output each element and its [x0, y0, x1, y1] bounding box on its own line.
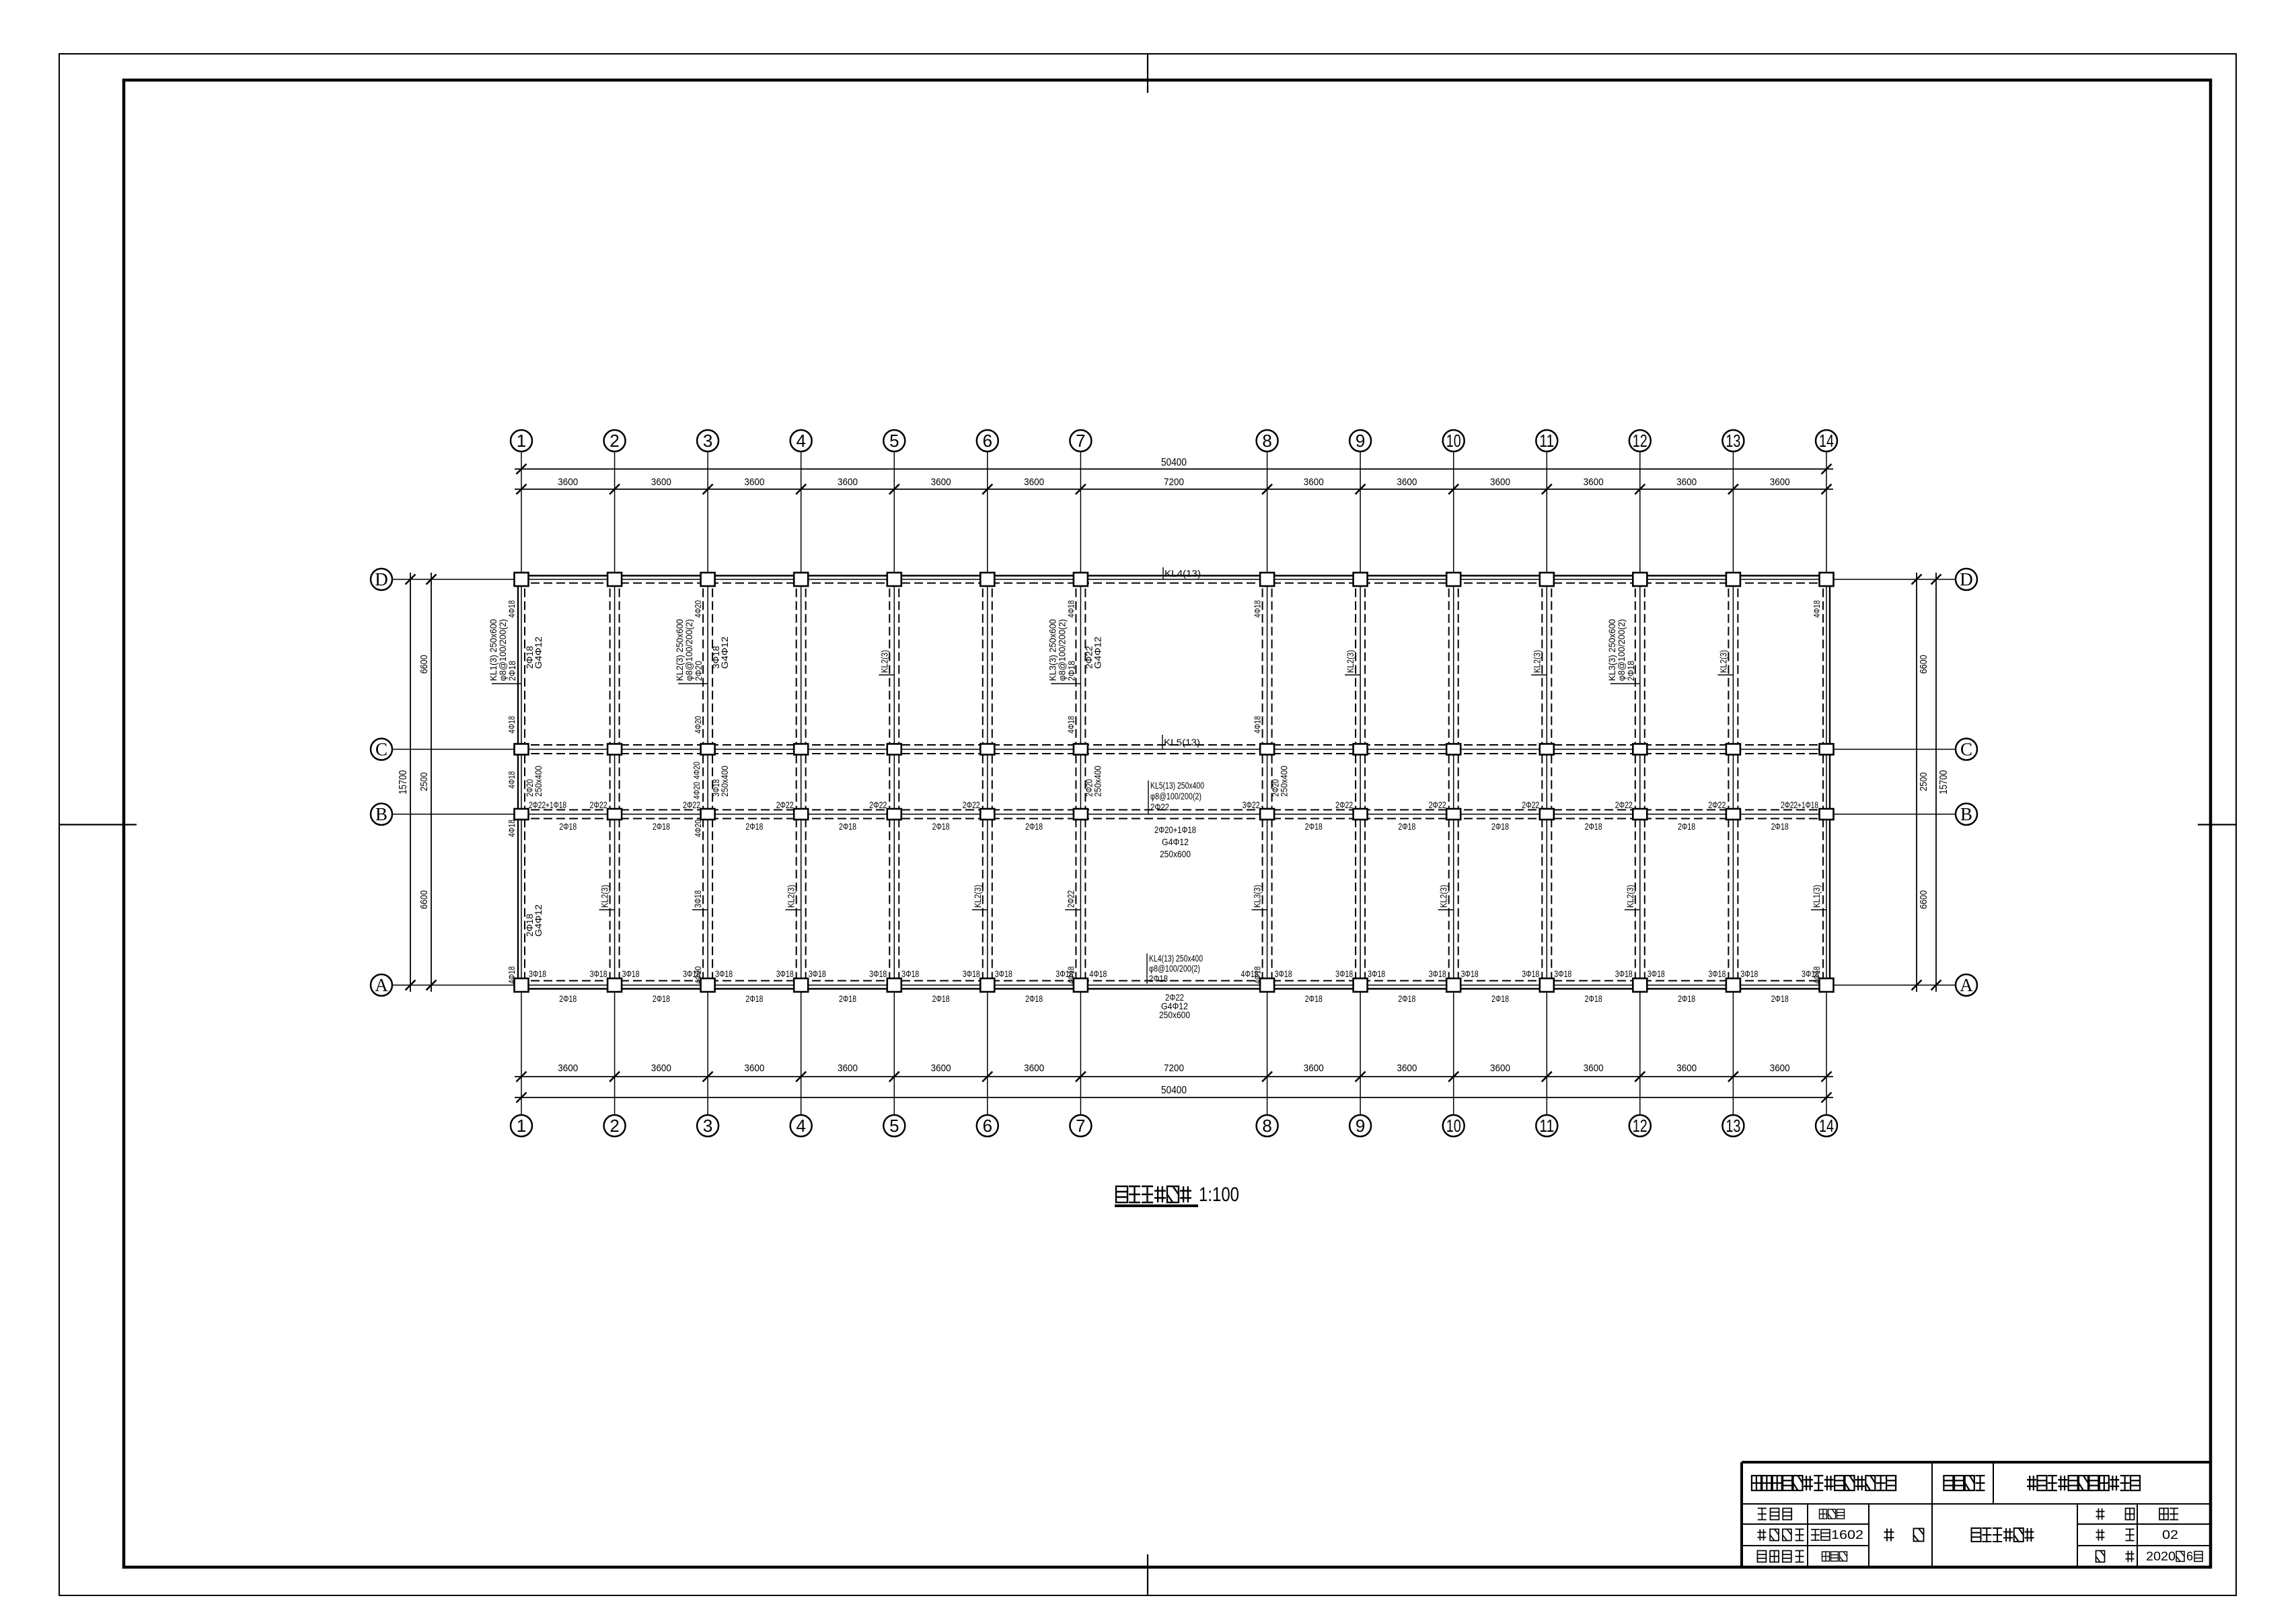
svg-text:2Φ20: 2Φ20: [694, 661, 704, 681]
svg-text:A: A: [1960, 975, 1973, 995]
svg-text:4Φ20: 4Φ20: [693, 716, 703, 733]
svg-text:3Φ18: 3Φ18: [1056, 969, 1073, 979]
svg-text:2Φ18: 2Φ18: [932, 822, 950, 832]
svg-text:2Φ22+1Φ18: 2Φ22+1Φ18: [529, 800, 566, 810]
svg-text:9: 9: [1356, 1116, 1365, 1136]
svg-text:KL5(13) 250x400: KL5(13) 250x400: [1150, 781, 1204, 791]
svg-text:3Φ18: 3Φ18: [1708, 969, 1726, 979]
svg-text:2Φ18: 2Φ18: [1626, 661, 1636, 681]
svg-text:KL2(3): KL2(3): [786, 885, 797, 908]
svg-text:2Φ18: 2Φ18: [745, 822, 763, 832]
svg-text:2500: 2500: [418, 772, 430, 791]
svg-text:2Φ22+1Φ18: 2Φ22+1Φ18: [1781, 800, 1818, 810]
svg-text:5: 5: [889, 431, 899, 451]
svg-text:2Φ22: 2Φ22: [1150, 802, 1169, 812]
svg-text:2500: 2500: [1918, 772, 1929, 791]
svg-text:15700: 15700: [1938, 770, 1950, 794]
svg-text:3600: 3600: [651, 1062, 671, 1074]
svg-text:3Φ18: 3Φ18: [715, 969, 733, 979]
svg-text:2Φ22: 2Φ22: [776, 800, 794, 810]
svg-text:KL2(3) 250x600: KL2(3) 250x600: [675, 619, 685, 681]
svg-text:4Φ20: 4Φ20: [693, 820, 703, 837]
svg-text:4Φ18: 4Φ18: [1812, 600, 1822, 618]
svg-text:3Φ18: 3Φ18: [1461, 969, 1479, 979]
svg-text:3600: 3600: [558, 1062, 578, 1074]
svg-text:4Φ18: 4Φ18: [507, 966, 517, 984]
svg-text:2Φ18: 2Φ18: [507, 661, 517, 681]
svg-text:2Φ18: 2Φ18: [1678, 822, 1695, 832]
svg-text:250x600: 250x600: [1159, 1010, 1190, 1020]
svg-text:250x600: 250x600: [1160, 849, 1191, 859]
svg-text:2Φ18: 2Φ18: [559, 822, 577, 832]
svg-text:6600: 6600: [1918, 655, 1929, 674]
svg-text:3Φ18: 3Φ18: [1368, 969, 1385, 979]
svg-text:4: 4: [796, 1116, 805, 1136]
svg-text:2Φ18: 2Φ18: [745, 994, 763, 1004]
svg-text:3Φ18: 3Φ18: [776, 969, 794, 979]
svg-text:G4Φ12: G4Φ12: [533, 637, 544, 669]
svg-text:D: D: [1960, 569, 1973, 589]
svg-text:3600: 3600: [1397, 1062, 1417, 1074]
svg-text:7: 7: [1076, 431, 1085, 451]
svg-text:2020: 2020: [2146, 1550, 2176, 1563]
svg-text:13: 13: [1726, 1116, 1740, 1136]
svg-text:2Φ22: 2Φ22: [590, 800, 607, 810]
svg-text:2Φ18: 2Φ18: [1585, 994, 1602, 1004]
svg-text:2Φ18: 2Φ18: [653, 994, 670, 1004]
svg-text:02: 02: [2162, 1528, 2178, 1542]
svg-text:3Φ18: 3Φ18: [1802, 969, 1819, 979]
svg-text:2Φ20+1Φ18: 2Φ20+1Φ18: [1154, 825, 1196, 835]
svg-text:3600: 3600: [1304, 476, 1324, 488]
svg-text:2Φ18: 2Φ18: [559, 994, 577, 1004]
svg-text:3600: 3600: [1676, 476, 1697, 488]
svg-text:2Φ18: 2Φ18: [1678, 994, 1695, 1004]
svg-text:3Φ18: 3Φ18: [963, 969, 980, 979]
svg-text:KL3(3) 250x600: KL3(3) 250x600: [1607, 619, 1617, 681]
svg-text:3600: 3600: [1584, 1062, 1604, 1074]
svg-text:KL4(13): KL4(13): [1164, 568, 1201, 579]
svg-text:2: 2: [609, 431, 619, 451]
svg-text:1:100: 1:100: [1199, 1184, 1239, 1206]
svg-text:3Φ18: 3Φ18: [1740, 969, 1758, 979]
svg-text:1602: 1602: [1831, 1528, 1863, 1542]
svg-text:250x400: 250x400: [1280, 766, 1290, 797]
svg-text:2Φ22: 2Φ22: [1708, 800, 1726, 810]
svg-text:2Φ18: 2Φ18: [932, 994, 950, 1004]
svg-text:50400: 50400: [1161, 457, 1187, 468]
svg-text:4Φ20: 4Φ20: [692, 762, 702, 779]
svg-text:C: C: [1960, 740, 1972, 760]
svg-text:3600: 3600: [1024, 1062, 1044, 1074]
svg-text:3Φ18: 3Φ18: [1554, 969, 1571, 979]
svg-text:6600: 6600: [418, 890, 430, 909]
svg-text:3600: 3600: [1770, 1062, 1790, 1074]
svg-text:2Φ18: 2Φ18: [1771, 822, 1789, 832]
svg-text:4: 4: [796, 431, 805, 451]
svg-text:4Φ18: 4Φ18: [1089, 969, 1107, 979]
svg-text:10: 10: [1446, 431, 1461, 451]
svg-text:2Φ18: 2Φ18: [1398, 822, 1415, 832]
svg-text:4Φ20: 4Φ20: [693, 600, 703, 618]
svg-text:4Φ20: 4Φ20: [692, 782, 702, 799]
svg-text:2Φ18: 2Φ18: [1771, 994, 1789, 1004]
svg-text:4Φ18: 4Φ18: [1253, 600, 1263, 618]
svg-text:250x400: 250x400: [1093, 766, 1103, 797]
svg-text:2Φ18: 2Φ18: [1398, 994, 1415, 1004]
svg-text:3Φ18: 3Φ18: [901, 969, 919, 979]
svg-text:2Φ18: 2Φ18: [653, 822, 670, 832]
svg-text:2Φ22: 2Φ22: [963, 800, 980, 810]
svg-text:14: 14: [1819, 1116, 1834, 1136]
svg-text:1: 1: [517, 431, 526, 451]
svg-text:3600: 3600: [1676, 1062, 1697, 1074]
svg-text:14: 14: [1819, 431, 1834, 451]
svg-text:3600: 3600: [558, 476, 578, 488]
svg-text:4Φ18: 4Φ18: [1066, 716, 1076, 733]
svg-text:50400: 50400: [1161, 1085, 1187, 1096]
svg-text:2Φ18: 2Φ18: [1025, 822, 1043, 832]
svg-text:2Φ22: 2Φ22: [1615, 800, 1633, 810]
svg-text:3600: 3600: [931, 476, 951, 488]
svg-text:G4Φ12: G4Φ12: [533, 904, 544, 937]
svg-text:3Φ18: 3Φ18: [809, 969, 826, 979]
svg-text:2Φ22: 2Φ22: [683, 800, 700, 810]
svg-text:3600: 3600: [1584, 476, 1604, 488]
svg-text:7: 7: [1076, 1116, 1085, 1136]
svg-text:8: 8: [1262, 431, 1271, 451]
svg-text:2Φ18: 2Φ18: [1491, 994, 1509, 1004]
svg-text:KL2(3): KL2(3): [1717, 650, 1728, 673]
svg-text:13: 13: [1726, 431, 1740, 451]
svg-text:10: 10: [1446, 1116, 1461, 1136]
svg-text:3600: 3600: [838, 476, 858, 488]
svg-text:3Φ18: 3Φ18: [1429, 969, 1446, 979]
svg-text:1: 1: [517, 1116, 526, 1136]
svg-text:6600: 6600: [1918, 890, 1929, 909]
svg-text:G4Φ12: G4Φ12: [1162, 837, 1189, 847]
svg-text:2Φ22: 2Φ22: [1429, 800, 1446, 810]
svg-text:B: B: [375, 804, 387, 824]
svg-text:KL2(3): KL2(3): [879, 650, 889, 673]
svg-text:15700: 15700: [398, 770, 409, 794]
svg-text:3600: 3600: [1490, 476, 1510, 488]
svg-text:3Φ18: 3Φ18: [1522, 969, 1539, 979]
svg-text:5: 5: [889, 1116, 899, 1136]
svg-text:KL2(3): KL2(3): [1531, 650, 1542, 673]
svg-text:3Φ18: 3Φ18: [995, 969, 1012, 979]
svg-text:3Φ18: 3Φ18: [1647, 969, 1665, 979]
svg-text:4Φ18: 4Φ18: [1066, 600, 1076, 618]
svg-text:φ8@100/200(2): φ8@100/200(2): [1057, 619, 1067, 681]
svg-text:G4Φ12: G4Φ12: [1093, 637, 1103, 669]
svg-text:6600: 6600: [418, 655, 430, 674]
svg-text:11: 11: [1539, 1116, 1554, 1136]
svg-text:KL2(3): KL2(3): [599, 885, 610, 908]
svg-text:3Φ18: 3Φ18: [683, 969, 700, 979]
svg-text:φ8@100/200(2): φ8@100/200(2): [684, 619, 694, 681]
svg-text:3Φ22: 3Φ22: [1243, 800, 1260, 810]
svg-text:2Φ18: 2Φ18: [1305, 994, 1323, 1004]
svg-text:G4Φ12: G4Φ12: [720, 637, 730, 669]
svg-text:4Φ18: 4Φ18: [507, 600, 517, 618]
svg-text:2Φ18: 2Φ18: [1491, 822, 1509, 832]
svg-text:3600: 3600: [744, 1062, 764, 1074]
svg-text:3Φ18: 3Φ18: [1275, 969, 1292, 979]
svg-text:4Φ18: 4Φ18: [507, 771, 517, 789]
svg-text:250x400: 250x400: [720, 766, 730, 797]
svg-text:2: 2: [609, 1116, 619, 1136]
svg-text:φ8@100/200(2): φ8@100/200(2): [498, 619, 508, 681]
svg-text:8: 8: [1262, 1116, 1271, 1136]
svg-text:3600: 3600: [1490, 1062, 1510, 1074]
svg-text:φ8@100/200(2): φ8@100/200(2): [1149, 964, 1200, 974]
svg-text:7200: 7200: [1164, 1062, 1184, 1074]
svg-text:11: 11: [1539, 431, 1554, 451]
svg-text:250x400: 250x400: [533, 766, 544, 797]
svg-text:6: 6: [983, 1116, 992, 1136]
svg-text:KL2(3): KL2(3): [1345, 650, 1356, 673]
svg-text:3Φ18: 3Φ18: [869, 969, 887, 979]
svg-text:6: 6: [2186, 1550, 2193, 1563]
svg-text:3600: 3600: [931, 1062, 951, 1074]
svg-text:3Φ18: 3Φ18: [590, 969, 607, 979]
svg-text:2Φ22: 2Φ22: [1522, 800, 1539, 810]
svg-text:KL3(3): KL3(3): [1252, 885, 1263, 908]
svg-text:12: 12: [1633, 1116, 1647, 1136]
svg-text:3600: 3600: [1770, 476, 1790, 488]
svg-text:3600: 3600: [838, 1062, 858, 1074]
svg-text:KL4(13) 250x400: KL4(13) 250x400: [1149, 953, 1203, 964]
svg-text:3600: 3600: [1024, 476, 1044, 488]
svg-text:KL2(3): KL2(3): [972, 885, 983, 908]
svg-text:2Φ18: 2Φ18: [1066, 661, 1076, 681]
svg-text:2Φ18: 2Φ18: [1149, 974, 1168, 984]
svg-text:3Φ18: 3Φ18: [692, 890, 703, 908]
svg-text:4Φ18: 4Φ18: [507, 820, 517, 837]
svg-text:4Φ18: 4Φ18: [507, 716, 517, 733]
svg-text:4Φ18: 4Φ18: [1241, 969, 1259, 979]
svg-text:3Φ18: 3Φ18: [1615, 969, 1633, 979]
svg-text:KL1(3): KL1(3): [1811, 885, 1822, 908]
svg-text:3Φ18: 3Φ18: [622, 969, 640, 979]
svg-text:KL1(3) 250x600: KL1(3) 250x600: [488, 619, 498, 681]
svg-text:2Φ22: 2Φ22: [1065, 890, 1076, 908]
svg-text:KL3(3) 250x600: KL3(3) 250x600: [1047, 619, 1058, 681]
svg-text:2Φ22: 2Φ22: [869, 800, 887, 810]
svg-text:3Φ18: 3Φ18: [529, 969, 546, 979]
svg-text:9: 9: [1356, 431, 1365, 451]
svg-text:3600: 3600: [1397, 476, 1417, 488]
svg-text:A: A: [375, 975, 388, 995]
svg-text:6: 6: [983, 431, 992, 451]
svg-text:12: 12: [1633, 431, 1647, 451]
svg-text:φ8@100/200(2): φ8@100/200(2): [1150, 791, 1201, 801]
svg-text:C: C: [375, 740, 387, 760]
svg-text:3600: 3600: [1304, 1062, 1324, 1074]
svg-text:φ8@100/200(2): φ8@100/200(2): [1617, 619, 1627, 681]
svg-text:4Φ18: 4Φ18: [1253, 716, 1263, 733]
svg-text:2Φ18: 2Φ18: [839, 822, 856, 832]
svg-text:3: 3: [703, 1116, 712, 1136]
svg-text:2Φ18: 2Φ18: [839, 994, 856, 1004]
svg-text:2Φ18: 2Φ18: [1025, 994, 1043, 1004]
svg-text:7200: 7200: [1164, 476, 1184, 488]
svg-text:3: 3: [703, 431, 712, 451]
svg-text:KL5(13): KL5(13): [1164, 737, 1200, 748]
svg-text:3Φ18: 3Φ18: [1335, 969, 1353, 979]
svg-text:B: B: [1960, 804, 1972, 824]
svg-text:2Φ18: 2Φ18: [1305, 822, 1323, 832]
svg-text:KL2(3): KL2(3): [1438, 885, 1449, 908]
svg-text:3600: 3600: [744, 476, 764, 488]
svg-text:D: D: [375, 569, 388, 589]
svg-text:3600: 3600: [651, 476, 671, 488]
svg-text:KL2(3): KL2(3): [1625, 885, 1635, 908]
svg-text:2Φ22: 2Φ22: [1335, 800, 1353, 810]
svg-text:2Φ18: 2Φ18: [1585, 822, 1602, 832]
